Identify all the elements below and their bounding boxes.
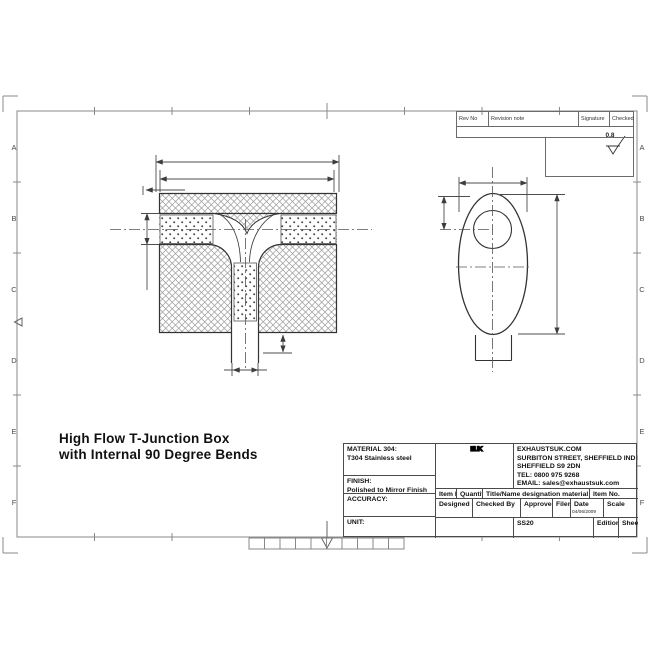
- center-mark-bottom-icon: [322, 521, 333, 548]
- checked-header: Checked: [610, 112, 635, 127]
- designation-header: Title/Name designation material dimensio…: [483, 489, 590, 499]
- material-value: T304 Stainless steel: [347, 455, 435, 464]
- checked-by-cell: Checked By: [473, 499, 521, 518]
- zone-label-left-a: A: [9, 143, 19, 152]
- end-view-oval: [438, 167, 565, 372]
- scale-strip: [249, 538, 404, 549]
- date-cell: Date 04/06/2009: [571, 499, 604, 518]
- drawing-title: High Flow T-Junction Box with Internal 9…: [59, 431, 258, 463]
- drawing-title-line2: with Internal 90 Degree Bends: [59, 447, 258, 463]
- zone-label-right-a: A: [637, 143, 647, 152]
- company-logo: EUK: [436, 444, 514, 489]
- company-address: EXHAUSTSUK.COM SURBITON STREET, SHEFFIEL…: [514, 444, 638, 489]
- zone-label-left-b: B: [9, 214, 19, 223]
- approved-by-cell: Approved by date: [521, 499, 553, 518]
- sheet-cell: Sheet: [619, 518, 638, 538]
- approval-row: Designed By Checked By Approved by date …: [436, 499, 638, 518]
- title-block: MATERIAL 304: T304 Stainless steel FINIS…: [343, 443, 637, 537]
- zone-label-left-f: F: [9, 498, 19, 507]
- company-tel: TEL: 0800 975 9268: [517, 472, 638, 481]
- finish-cell: FINISH: Polished to Mirror Finish: [344, 476, 436, 494]
- company-address2: SHEFFIELD S9 2DN: [517, 463, 638, 472]
- unit-cell: UNIT:: [344, 517, 436, 538]
- signature-header: Signature: [579, 112, 610, 127]
- company-website: EXHAUSTSUK.COM: [517, 446, 638, 455]
- material-cell: MATERIAL 304: T304 Stainless steel: [344, 444, 436, 476]
- zone-label-right-b: B: [637, 214, 647, 223]
- zone-label-right-f: F: [637, 498, 647, 507]
- section-view-t-junction: [110, 155, 372, 376]
- zone-label-right-e: E: [637, 427, 647, 436]
- drawing-linework: [0, 0, 650, 650]
- general-finish-box: [545, 138, 634, 177]
- rev-no-header: Rev No: [457, 112, 489, 127]
- item-no-header: Item No: [436, 489, 457, 499]
- accuracy-label: ACCURACY:: [347, 496, 435, 505]
- scale-cell: Scale: [604, 499, 638, 518]
- company-address1: SURBITON STREET, SHEFFIELD IND EST.,: [517, 455, 638, 464]
- unit-label: UNIT:: [347, 519, 435, 528]
- drawing-number: SS20: [514, 518, 594, 538]
- material-label: MATERIAL 304:: [347, 446, 435, 455]
- revision-note-header: Revision note: [489, 112, 579, 127]
- date-label: Date: [574, 501, 589, 508]
- company-email: EMAIL: sales@exhaustsuk.com: [517, 480, 638, 489]
- finish-label: FINISH:: [347, 478, 435, 487]
- drawing-title-line1: High Flow T-Junction Box: [59, 431, 258, 447]
- drawing-sheet: A B C D E F A B C D E F Rev No Revision …: [0, 0, 650, 650]
- center-mark-left-icon: [15, 318, 23, 326]
- quantity-header: Quantity: [457, 489, 483, 499]
- designed-by-cell: Designed By: [436, 499, 473, 518]
- doc-row: SS20 Edition Sheet: [436, 518, 638, 538]
- finish-value: Polished to Mirror Finish: [347, 487, 435, 495]
- item-row: Item No Quantity Title/Name designation …: [436, 489, 638, 499]
- zone-label-left-e: E: [9, 427, 19, 436]
- zone-label-left-c: C: [9, 285, 19, 294]
- surface-finish-value: 0.8: [600, 132, 620, 139]
- dimension-lines: [438, 177, 565, 334]
- zone-label-left-d: D: [9, 356, 19, 365]
- item-no2-header: Item No.: [590, 489, 638, 499]
- filename-cell: Filename: [553, 499, 571, 518]
- zone-label-right-d: D: [637, 356, 647, 365]
- doc-empty-cell: [436, 518, 514, 538]
- zone-label-right-c: C: [637, 285, 647, 294]
- edition-cell: Edition: [594, 518, 619, 538]
- accuracy-cell: ACCURACY:: [344, 494, 436, 517]
- revision-table-header: Rev No Revision note Signature Checked: [457, 112, 633, 127]
- date-value: 04/06/2009: [572, 509, 596, 518]
